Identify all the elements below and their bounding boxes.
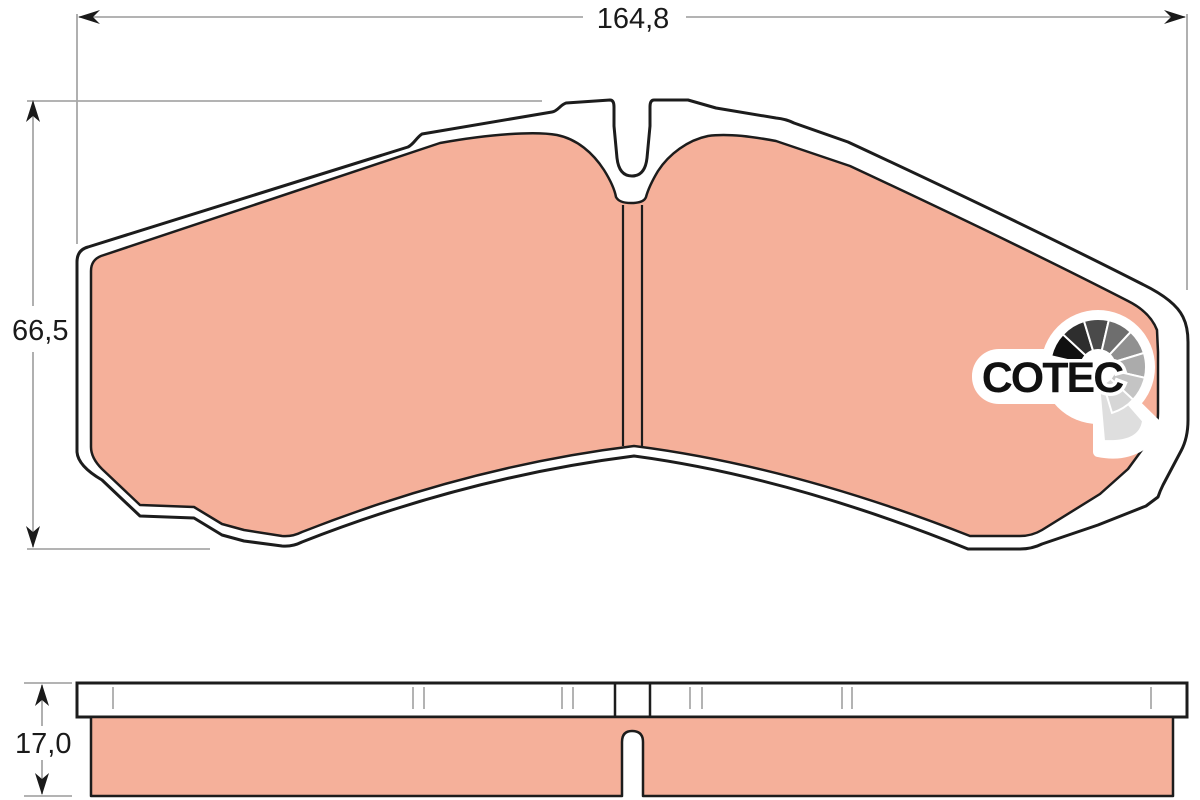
- width-dimension-label: 164,8: [597, 3, 670, 35]
- thickness-dimension-label: 17,0: [15, 728, 71, 760]
- dimension-thickness: 17,0: [15, 683, 72, 796]
- brake-pad-technical-drawing: COTEC 164,8 66,5 17,0: [0, 0, 1200, 800]
- top-view-pad: [77, 100, 1188, 549]
- friction-material-side: [91, 717, 1173, 796]
- height-dimension-label: 66,5: [12, 315, 68, 347]
- side-view-pad: [77, 683, 1187, 796]
- drawing-canvas: COTEC 164,8 66,5 17,0: [0, 0, 1200, 800]
- backing-plate-side: [77, 683, 1187, 717]
- logo-text: COTEC: [982, 354, 1123, 402]
